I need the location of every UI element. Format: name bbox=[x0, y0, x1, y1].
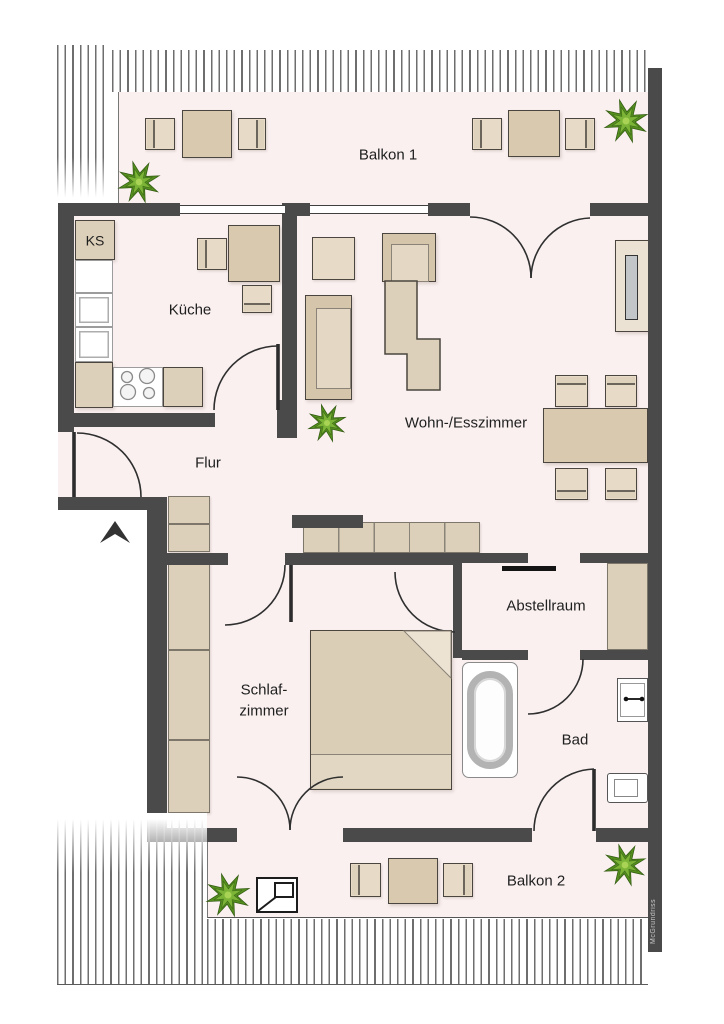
bed bbox=[310, 630, 452, 790]
room-label-schlafzimmer: Schlaf-zimmer bbox=[239, 680, 288, 721]
wall bbox=[453, 553, 462, 658]
room-label-schlafzimmer-line1: Schlaf- bbox=[239, 680, 288, 701]
room-label-kueche: Küche bbox=[169, 301, 212, 322]
balkon2-chair bbox=[443, 863, 473, 897]
chair-backrest bbox=[607, 492, 635, 498]
wall bbox=[277, 400, 297, 438]
room-label-wohn-esszimmer: Wohn-/Esszimmer bbox=[405, 414, 527, 435]
wall bbox=[596, 828, 648, 842]
room-label-flur: Flur bbox=[195, 454, 221, 475]
dining-table bbox=[543, 408, 648, 463]
dining-chair bbox=[605, 468, 637, 500]
bedroom-wardrobe bbox=[168, 563, 210, 650]
chair-backrest bbox=[258, 120, 264, 148]
chair-backrest-line bbox=[256, 120, 258, 148]
north-arrow-icon bbox=[100, 521, 130, 543]
bedroom-wardrobe bbox=[168, 740, 210, 813]
storage-shelf bbox=[607, 563, 648, 650]
room-label-abstellraum: Abstellraum bbox=[506, 597, 585, 618]
hall-wardrobe bbox=[168, 524, 210, 552]
balkon2-table bbox=[388, 858, 438, 904]
deck-hatch-left bbox=[57, 45, 107, 202]
balkon1-table bbox=[508, 110, 560, 157]
wall bbox=[462, 553, 528, 563]
abstellraum-door-slab bbox=[502, 566, 556, 571]
fridge-label: KS bbox=[86, 231, 105, 250]
chair-backrest bbox=[465, 865, 471, 895]
wall bbox=[58, 203, 180, 216]
chair-backrest bbox=[587, 120, 593, 148]
washbasin-inner bbox=[620, 683, 645, 717]
wall bbox=[285, 553, 462, 565]
wall bbox=[147, 497, 167, 842]
watermark: McGrundriss bbox=[650, 888, 662, 944]
balkon1-table bbox=[182, 110, 232, 158]
chair-backrest-line bbox=[244, 303, 270, 305]
floor-plan: Balkon 1KücheWohn-/EsszimmerFlurAbstellr… bbox=[0, 0, 724, 1024]
chair-backrest-line bbox=[557, 383, 586, 385]
tv-sideboard-slot bbox=[625, 255, 638, 320]
deck-hatch-top bbox=[112, 50, 647, 92]
kitchen-appliance bbox=[75, 327, 113, 362]
chair-backrest-line bbox=[153, 120, 155, 148]
wall bbox=[648, 68, 662, 952]
room-label-balkon-2: Balkon 2 bbox=[507, 872, 565, 893]
stove bbox=[113, 367, 163, 407]
kitchen-chair bbox=[197, 238, 227, 270]
balkon2-chair bbox=[350, 863, 381, 897]
kitchen-chair bbox=[242, 285, 272, 313]
sofa bbox=[305, 295, 352, 400]
deck-hatch-bottom bbox=[207, 919, 648, 985]
chair-backrest bbox=[244, 305, 270, 311]
wall bbox=[282, 203, 297, 403]
armchair-seat bbox=[391, 244, 429, 282]
chair-backrest-line bbox=[607, 490, 635, 492]
wall bbox=[462, 650, 528, 660]
kitchen-counter bbox=[163, 367, 203, 407]
room-label-balkon-1: Balkon 1 bbox=[359, 146, 417, 167]
wall bbox=[292, 515, 363, 528]
chair-backrest-line bbox=[585, 120, 587, 148]
wall bbox=[580, 650, 648, 660]
hatch-fade bbox=[57, 157, 107, 202]
kitchen-counter-sink bbox=[75, 260, 113, 293]
dining-chair bbox=[555, 375, 588, 407]
bedroom-wardrobe bbox=[168, 650, 210, 740]
wall bbox=[580, 553, 648, 563]
wall bbox=[58, 497, 147, 510]
room-label-schlafzimmer-line2: zimmer bbox=[239, 701, 288, 722]
roof-window-icon-pane bbox=[274, 882, 294, 898]
chair-backrest-line bbox=[463, 865, 465, 895]
balkon1-chair bbox=[472, 118, 502, 150]
hall-wardrobe bbox=[168, 496, 210, 524]
kitchen-counter bbox=[75, 362, 113, 408]
wall bbox=[58, 413, 215, 427]
balkon1-chair bbox=[238, 118, 266, 150]
chair-backrest bbox=[557, 492, 586, 498]
chair-backrest-line bbox=[557, 490, 586, 492]
ottoman bbox=[312, 237, 355, 280]
chair-backrest-line bbox=[358, 865, 360, 895]
window bbox=[180, 205, 285, 214]
sofa-seat bbox=[316, 308, 351, 389]
dining-chair bbox=[555, 468, 588, 500]
wall bbox=[58, 203, 74, 432]
wall bbox=[428, 203, 470, 216]
wall bbox=[147, 553, 228, 565]
toilet-inner bbox=[614, 779, 638, 797]
chair-backrest-line bbox=[607, 383, 635, 385]
bed-foot-blanket bbox=[311, 754, 451, 788]
wall bbox=[343, 828, 532, 842]
kitchen-appliance bbox=[75, 293, 113, 327]
balkon1-chair bbox=[565, 118, 595, 150]
room-label-bad: Bad bbox=[562, 731, 589, 752]
chair-backrest-line bbox=[205, 240, 207, 268]
hatch-fade bbox=[57, 813, 207, 873]
armchair bbox=[382, 233, 436, 282]
deck-hatch-bottom-left bbox=[57, 813, 207, 985]
bathtub-basin bbox=[467, 671, 513, 769]
kitchen-table bbox=[228, 225, 280, 282]
balkon1-chair bbox=[145, 118, 175, 150]
chair-backrest-line bbox=[480, 120, 482, 148]
dining-chair bbox=[605, 375, 637, 407]
window bbox=[310, 205, 428, 214]
